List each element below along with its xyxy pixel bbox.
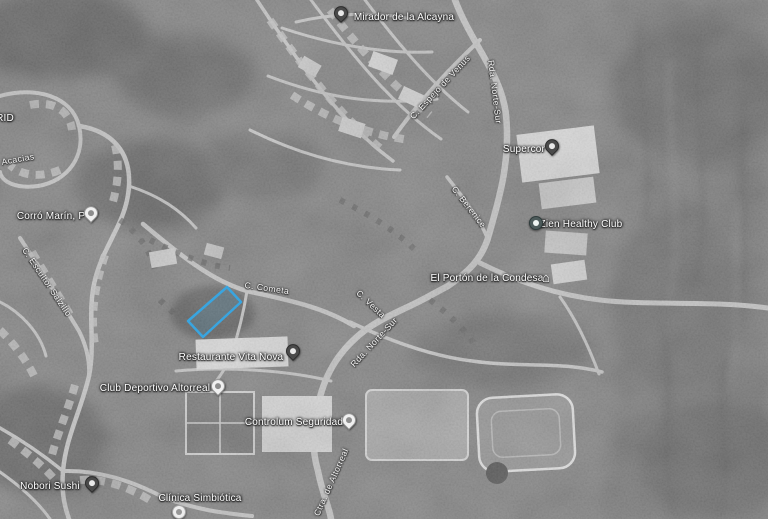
map-place[interactable]: Supercor bbox=[503, 139, 545, 157]
map-place[interactable]: Restaurante Vita Nova bbox=[179, 347, 284, 365]
map-place[interactable]: Zien Healthy Club bbox=[540, 214, 623, 232]
place-label: Clínica Simbiótica bbox=[158, 493, 241, 504]
street-label: C. Cometa bbox=[244, 280, 290, 296]
map-labels-layer: Mirador de la AlcaynaRIDCorró Marín, PSu… bbox=[0, 0, 768, 519]
street-label: Rda. Norte-Sur bbox=[348, 315, 399, 369]
map-place[interactable]: Nobori Sushi bbox=[20, 476, 80, 494]
restaurant-pin-icon[interactable] bbox=[283, 341, 303, 361]
place-label: Restaurante Vita Nova bbox=[179, 352, 284, 363]
leisure-pin-icon[interactable] bbox=[529, 216, 543, 230]
place-label: Controlum Seguridad bbox=[245, 417, 343, 428]
place-label: Corró Marín, P bbox=[17, 211, 85, 222]
street-label: C. Espejo de Venus bbox=[408, 53, 472, 121]
map-place[interactable]: Controlum Seguridad bbox=[245, 412, 343, 430]
map-place[interactable]: RID bbox=[0, 108, 14, 126]
place-label: Zien Healthy Club bbox=[540, 219, 623, 230]
place-label: RID bbox=[0, 113, 14, 124]
place-label: Nobori Sushi bbox=[20, 481, 80, 492]
satellite-map-canvas[interactable]: Mirador de la AlcaynaRIDCorró Marín, PSu… bbox=[0, 0, 768, 519]
street-label: C. Berenice bbox=[450, 184, 489, 229]
map-place[interactable]: Corró Marín, P bbox=[17, 206, 85, 224]
place-label: Club Deportivo Altorreal bbox=[100, 383, 210, 394]
restaurant-pin-icon[interactable] bbox=[82, 473, 102, 493]
place-label: Supercor bbox=[503, 144, 545, 155]
place-label: El Portón de la Condesa bbox=[430, 273, 543, 284]
monument-icon[interactable] bbox=[542, 269, 554, 281]
place-label: Mirador de la Alcayna bbox=[354, 12, 454, 23]
map-place[interactable]: Club Deportivo Altorreal bbox=[100, 378, 210, 396]
health-pin-icon[interactable] bbox=[172, 505, 186, 519]
place-pin-icon[interactable] bbox=[208, 376, 228, 396]
map-place[interactable]: Mirador de la Alcayna bbox=[354, 7, 454, 25]
map-place[interactable]: El Portón de la Condesa bbox=[430, 268, 543, 286]
street-label: C. Vesta bbox=[354, 288, 387, 320]
street-label: Acacias bbox=[1, 151, 35, 167]
street-label: Rda. Norte-Sur bbox=[486, 60, 504, 125]
street-label: C. Escultor Salzillo bbox=[20, 246, 74, 319]
photo-pin-icon[interactable] bbox=[331, 3, 351, 23]
street-label: Ctra. de Altorreal bbox=[312, 447, 351, 518]
map-place[interactable]: Clínica Simbiótica bbox=[158, 488, 241, 506]
